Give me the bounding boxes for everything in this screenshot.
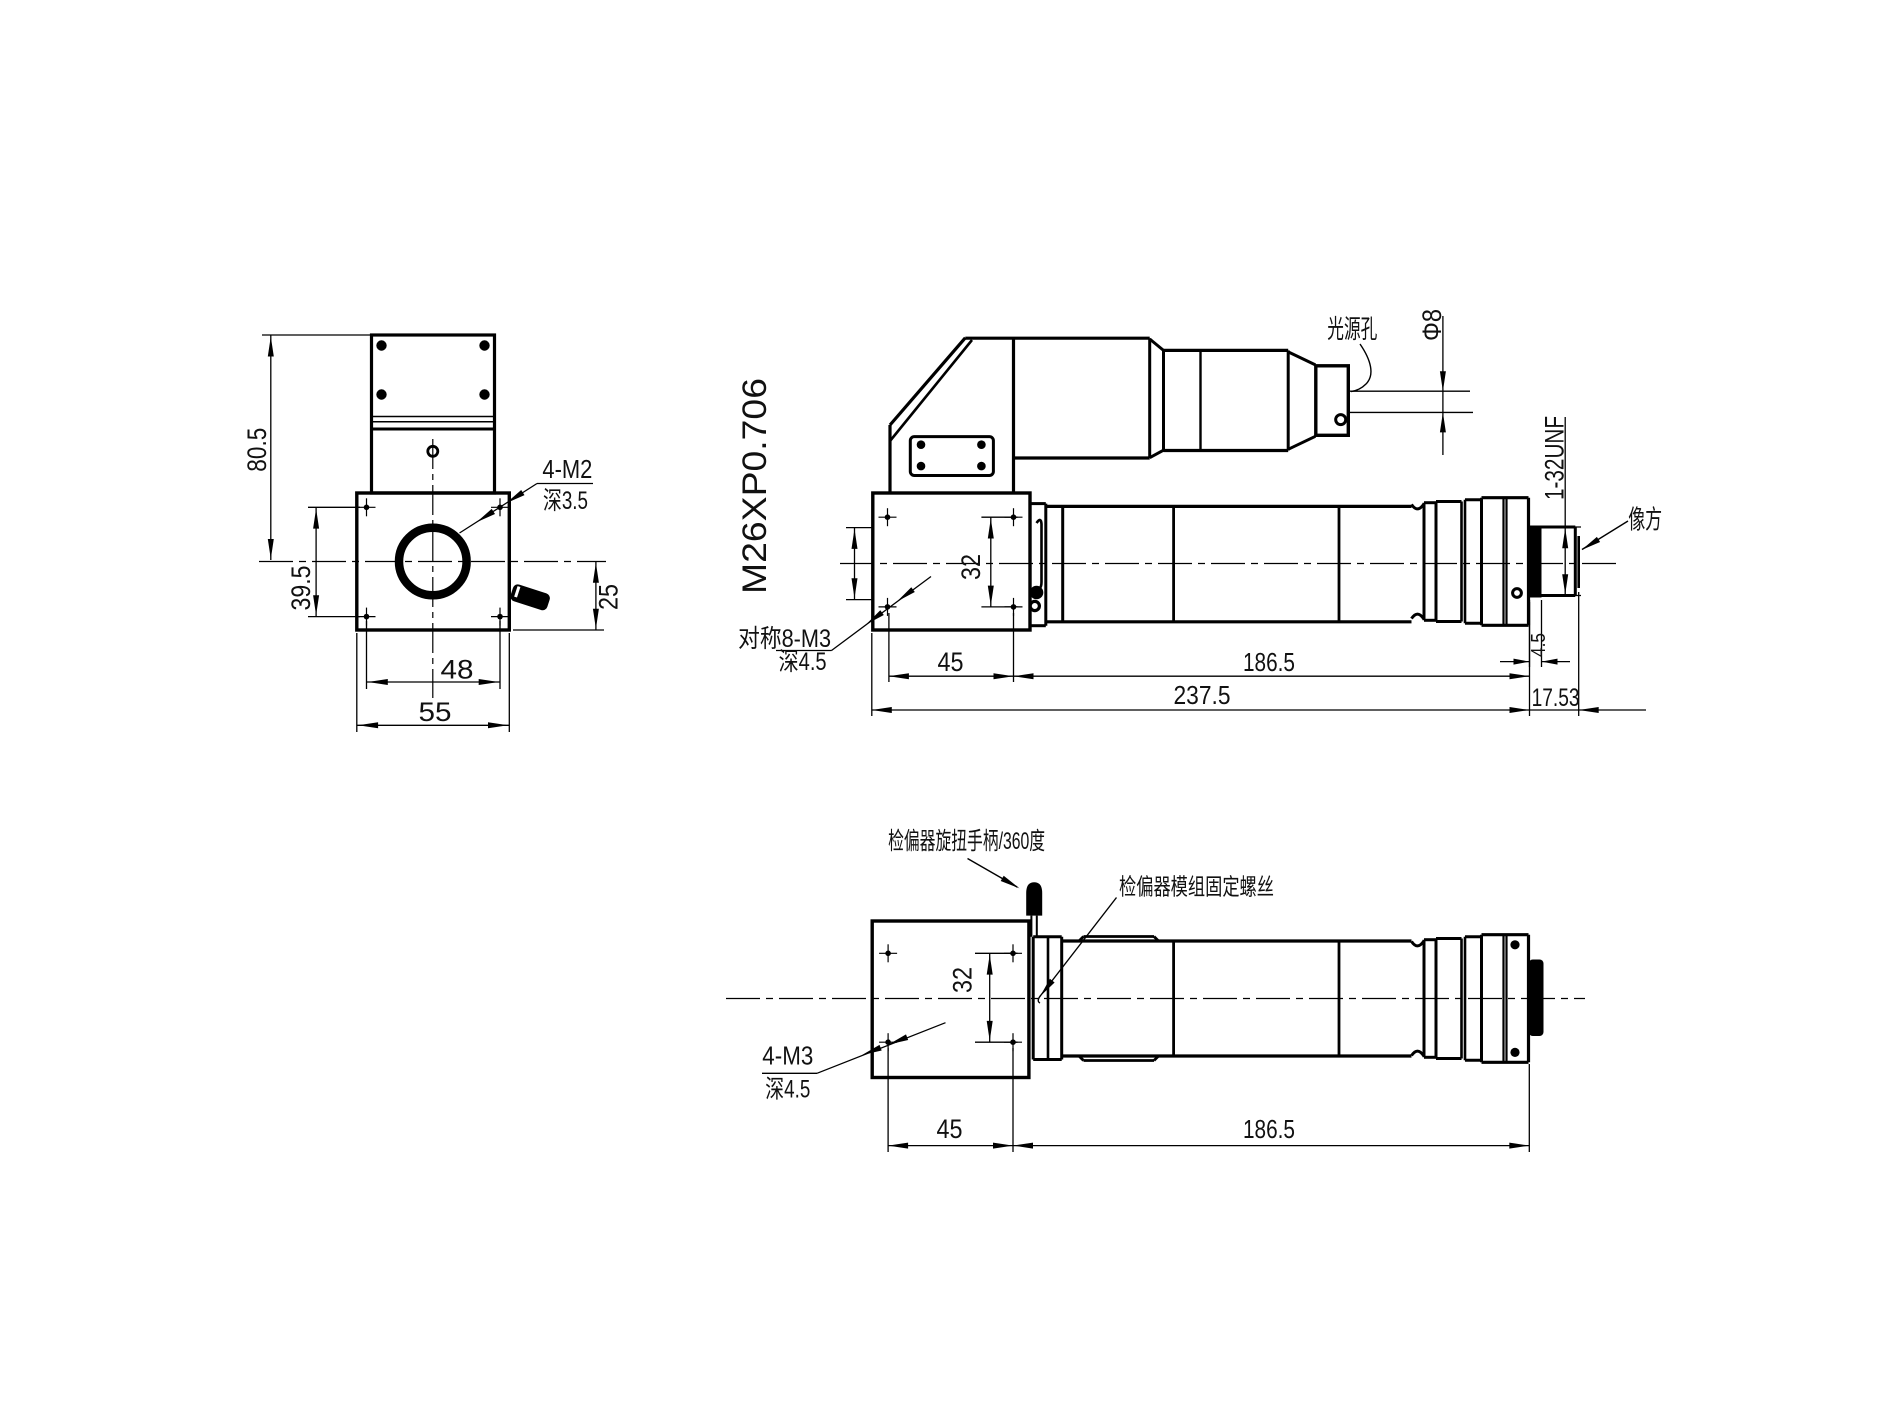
svg-text:80.5: 80.5: [242, 428, 272, 472]
svg-text:光源孔: 光源孔: [1327, 314, 1377, 344]
svg-text:4.5: 4.5: [1528, 633, 1550, 657]
svg-text:45: 45: [937, 1114, 963, 1144]
svg-text:45: 45: [938, 647, 964, 677]
svg-text:像方: 像方: [1628, 505, 1662, 535]
svg-text:深3.5: 深3.5: [543, 487, 588, 515]
svg-text:Φ8: Φ8: [1417, 309, 1447, 341]
svg-text:32: 32: [956, 554, 986, 580]
svg-text:186.5: 186.5: [1243, 647, 1295, 677]
svg-text:237.5: 237.5: [1174, 680, 1231, 710]
svg-text:32: 32: [948, 967, 978, 993]
svg-text:4-M2: 4-M2: [542, 454, 592, 484]
svg-text:39.5: 39.5: [286, 566, 316, 611]
svg-text:48: 48: [441, 655, 474, 685]
svg-text:检偏器模组固定螺丝: 检偏器模组固定螺丝: [1119, 874, 1274, 900]
svg-text:17.53: 17.53: [1532, 684, 1580, 712]
svg-text:4-M3: 4-M3: [762, 1041, 813, 1071]
svg-text:M26XP0.706: M26XP0.706: [736, 378, 774, 594]
svg-text:25: 25: [594, 584, 624, 610]
svg-text:深4.5: 深4.5: [765, 1076, 810, 1104]
svg-text:1-32UNF: 1-32UNF: [1540, 416, 1570, 500]
svg-text:55: 55: [419, 697, 452, 727]
svg-text:186.5: 186.5: [1243, 1114, 1295, 1144]
svg-text:深4.5: 深4.5: [779, 648, 827, 676]
svg-text:检偏器旋扭手柄/360度: 检偏器旋扭手柄/360度: [888, 828, 1045, 855]
